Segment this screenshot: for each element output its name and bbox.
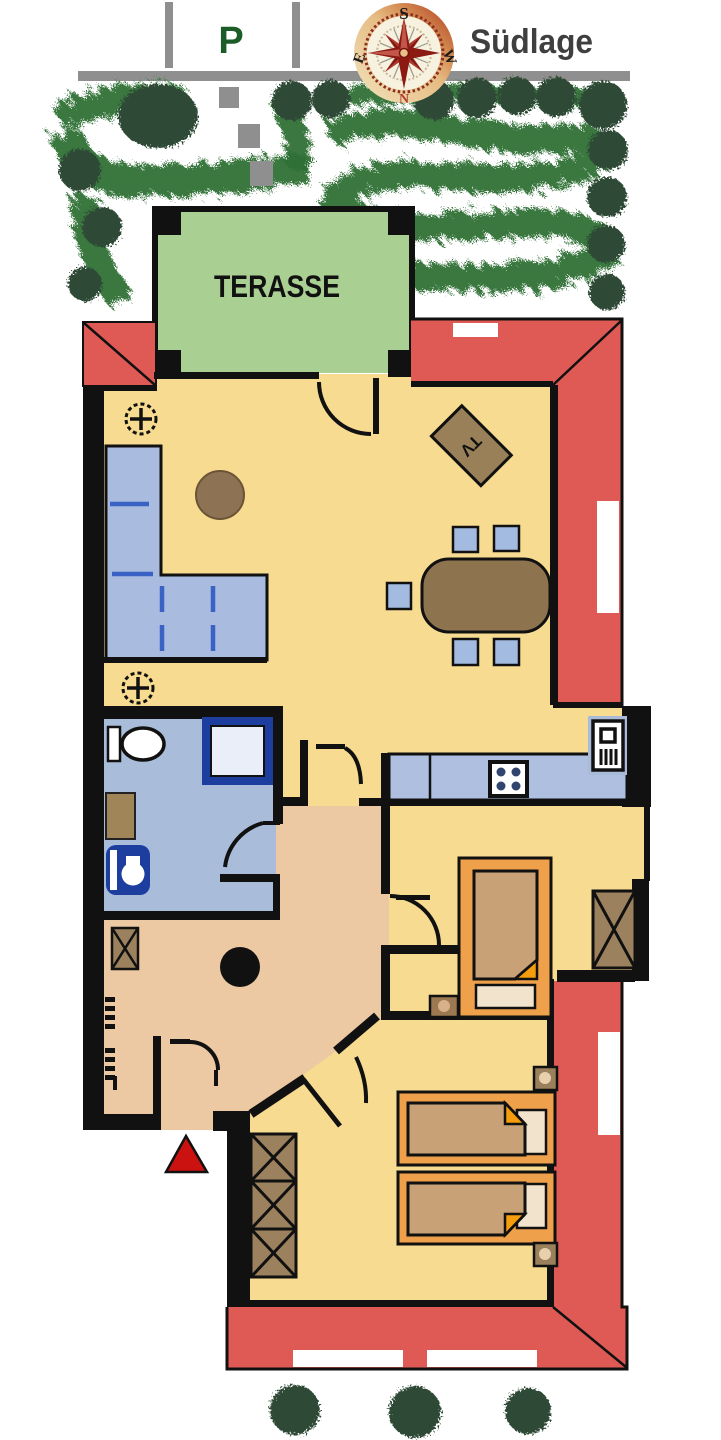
svg-text:P: P [218, 20, 243, 62]
svg-text:N: N [399, 92, 409, 107]
svg-text:S: S [399, 4, 408, 23]
svg-text:Südlage: Südlage [470, 23, 593, 61]
svg-text:TERASSE: TERASSE [214, 268, 340, 304]
